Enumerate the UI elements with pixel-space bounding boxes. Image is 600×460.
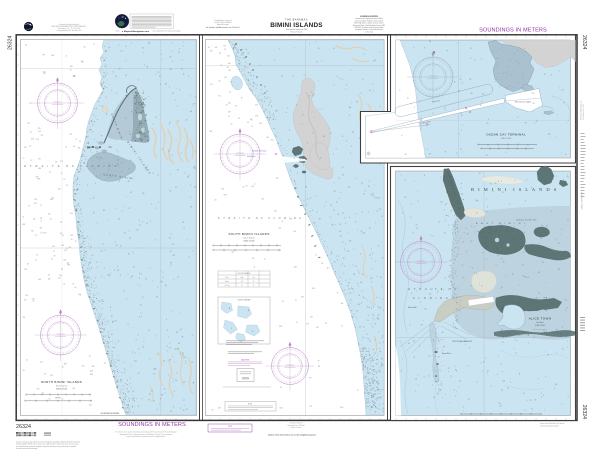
svg-text:33: 33 (153, 400, 155, 402)
svg-text:22: 22 (460, 79, 462, 81)
svg-text:11: 11 (538, 292, 540, 294)
svg-text:2: 2 (155, 208, 156, 210)
svg-text:19: 19 (339, 224, 341, 226)
svg-text:426: 426 (31, 138, 34, 140)
svg-text:2: 2 (190, 197, 191, 199)
svg-text:5: 5 (561, 229, 562, 231)
svg-text:8: 8 (424, 175, 425, 177)
svg-text:21: 21 (527, 277, 529, 279)
svg-text:37: 37 (318, 361, 320, 363)
svg-text:6: 6 (469, 348, 470, 350)
svg-text:1: 1 (555, 137, 556, 139)
svg-text:47: 47 (146, 223, 148, 225)
svg-text:42: 42 (461, 115, 463, 117)
svg-text:1: 1 (176, 88, 177, 90)
svg-text:17: 17 (444, 346, 446, 348)
svg-text:8: 8 (515, 339, 516, 341)
svg-text:1: 1 (125, 61, 126, 63)
svg-text:2: 2 (351, 102, 352, 104)
svg-text:5: 5 (482, 371, 483, 373)
svg-text:45: 45 (425, 308, 427, 310)
svg-text:77: 77 (372, 194, 374, 196)
svg-text:24: 24 (363, 297, 365, 299)
svg-text:38: 38 (429, 41, 431, 43)
svg-text:455: 455 (70, 213, 73, 215)
svg-text:37: 37 (544, 74, 546, 76)
svg-text:47: 47 (106, 114, 108, 116)
svg-text:SOUNDINGS IN METERS: SOUNDINGS IN METERS (533, 328, 547, 330)
svg-text:14: 14 (251, 126, 253, 128)
svg-text:3: 3 (418, 201, 419, 203)
svg-text:47: 47 (460, 113, 462, 115)
svg-text:6: 6 (173, 279, 174, 281)
svg-text:443: 443 (215, 47, 218, 49)
svg-text:360: 360 (228, 70, 231, 72)
svg-text:2: 2 (174, 362, 175, 364)
svg-text:15: 15 (125, 118, 127, 120)
svg-text:3: 3 (109, 276, 110, 278)
svg-text:17: 17 (316, 62, 318, 64)
svg-text:2: 2 (274, 60, 275, 62)
svg-text:B: B (248, 310, 249, 312)
svg-text:191: 191 (52, 198, 55, 200)
svg-text:2: 2 (383, 364, 384, 366)
svg-text:3: 3 (409, 324, 410, 326)
svg-text:3: 3 (481, 363, 482, 365)
svg-text:730: 730 (70, 235, 73, 237)
svg-text:83: 83 (135, 361, 137, 363)
svg-text:1: 1 (135, 353, 136, 355)
svg-text:26324: 26324 (16, 424, 31, 430)
svg-text:347: 347 (24, 147, 27, 149)
svg-text:62: 62 (367, 360, 369, 362)
svg-text:7: 7 (131, 388, 132, 390)
svg-text:1: 1 (79, 206, 80, 208)
svg-text:23: 23 (536, 121, 538, 123)
svg-text:3: 3 (153, 124, 154, 126)
svg-text:43: 43 (30, 131, 32, 133)
svg-text:31: 31 (164, 388, 166, 390)
svg-text:4: 4 (350, 152, 351, 154)
svg-text:11: 11 (342, 213, 344, 215)
svg-text:655: 655 (228, 103, 231, 105)
svg-text:93: 93 (533, 103, 535, 105)
svg-text:779: 779 (42, 55, 45, 57)
svg-text:1: 1 (462, 151, 463, 153)
svg-text:179: 179 (306, 324, 309, 326)
svg-text:11: 11 (342, 136, 344, 138)
svg-text:25: 25 (139, 273, 141, 275)
svg-text:2: 2 (474, 232, 475, 234)
svg-text:ALICE TOWN: ALICE TOWN (529, 317, 552, 321)
svg-text:671: 671 (310, 406, 313, 408)
svg-text:16: 16 (341, 326, 343, 328)
svg-text:39: 39 (371, 407, 373, 409)
svg-text:58: 58 (103, 210, 105, 212)
svg-text:13: 13 (253, 83, 255, 85)
svg-text:111: 111 (276, 177, 279, 179)
svg-text:3: 3 (161, 54, 162, 56)
svg-text:B I M I N I I S L A N D S: B I M I N I I S L A N D S (471, 187, 558, 192)
svg-text:34: 34 (501, 390, 503, 392)
svg-text:22: 22 (487, 123, 489, 125)
svg-text:SOUNDINGS IN METERS: SOUNDINGS IN METERS (118, 422, 186, 428)
svg-text:20: 20 (231, 123, 233, 125)
svg-text:2: 2 (130, 383, 131, 385)
svg-text:96: 96 (156, 296, 158, 298)
svg-text:6: 6 (146, 140, 147, 142)
svg-text:643: 643 (90, 370, 93, 372)
svg-text:3: 3 (190, 185, 191, 187)
svg-text:31: 31 (96, 157, 98, 159)
svg-text:1: 1 (176, 140, 177, 142)
svg-text:8: 8 (167, 330, 168, 332)
svg-text:7: 7 (473, 240, 474, 242)
svg-text:4: 4 (487, 206, 488, 208)
svg-text:43: 43 (75, 241, 77, 243)
svg-text:6: 6 (152, 173, 153, 175)
svg-text:8: 8 (378, 319, 379, 321)
svg-text:33: 33 (135, 104, 137, 106)
svg-text:5: 5 (144, 65, 145, 67)
svg-text:6: 6 (454, 390, 455, 392)
svg-text:4: 4 (117, 266, 118, 268)
svg-text:26: 26 (186, 409, 188, 411)
svg-text:311: 311 (43, 71, 46, 73)
svg-text:3: 3 (118, 45, 119, 47)
svg-text:2: 2 (495, 249, 496, 251)
svg-text:92: 92 (119, 69, 121, 71)
svg-text:73: 73 (531, 408, 533, 410)
svg-text:1: 1 (297, 173, 298, 175)
svg-text:22: 22 (141, 97, 143, 99)
svg-text:42: 42 (378, 315, 380, 317)
svg-text:49: 49 (131, 276, 133, 278)
svg-text:21: 21 (502, 192, 504, 194)
svg-text:42: 42 (512, 274, 514, 276)
svg-text:2: 2 (175, 100, 176, 102)
svg-text:3: 3 (376, 371, 377, 373)
svg-text:19: 19 (367, 320, 369, 322)
svg-text:51: 51 (562, 349, 564, 351)
svg-text:65: 65 (360, 282, 362, 284)
svg-text:579: 579 (64, 250, 67, 252)
svg-text:2: 2 (377, 318, 378, 320)
svg-text:7: 7 (139, 354, 140, 356)
svg-text:41: 41 (155, 117, 157, 119)
svg-text:58: 58 (40, 218, 42, 220)
svg-text:53: 53 (356, 311, 358, 313)
svg-text:3: 3 (413, 233, 414, 235)
svg-text:79: 79 (380, 277, 382, 279)
svg-text:543: 543 (341, 303, 344, 305)
svg-text:2: 2 (474, 273, 475, 275)
svg-text:6: 6 (521, 334, 522, 336)
svg-text:49: 49 (172, 244, 174, 246)
svg-text:774: 774 (104, 363, 107, 365)
svg-text:34: 34 (483, 361, 485, 363)
svg-text:44: 44 (281, 75, 283, 77)
svg-text:496: 496 (92, 366, 95, 368)
svg-text:18: 18 (490, 184, 492, 186)
svg-text:548: 548 (32, 298, 35, 300)
svg-text:11: 11 (428, 376, 430, 378)
svg-text:9: 9 (143, 91, 144, 93)
svg-text:57: 57 (138, 349, 140, 351)
svg-text:56: 56 (184, 357, 186, 359)
svg-text:23: 23 (476, 212, 478, 214)
svg-text:6: 6 (556, 352, 557, 354)
svg-text:134: 134 (227, 56, 230, 58)
svg-text:2: 2 (568, 397, 569, 399)
svg-text:55: 55 (229, 91, 231, 93)
svg-text:1: 1 (287, 108, 288, 110)
svg-text:97: 97 (375, 324, 377, 326)
svg-text:SOUNDINGS IN METERS: SOUNDINGS IN METERS (479, 27, 547, 33)
svg-text:36: 36 (553, 251, 555, 253)
svg-text:3: 3 (472, 268, 473, 270)
svg-text:12: 12 (158, 72, 160, 74)
svg-text:6: 6 (163, 277, 164, 279)
svg-text:603: 603 (280, 407, 283, 409)
svg-text:51: 51 (337, 293, 339, 295)
svg-text:55: 55 (369, 255, 371, 257)
svg-text:2: 2 (515, 180, 516, 182)
svg-text:7: 7 (459, 133, 460, 135)
svg-text:29: 29 (369, 90, 371, 92)
svg-text:2: 2 (90, 151, 91, 153)
svg-text:97: 97 (505, 337, 507, 339)
svg-text:86: 86 (436, 381, 438, 383)
svg-text:NORTH BIMINI ISLANDS: NORTH BIMINI ISLANDS (41, 380, 82, 384)
svg-text:47: 47 (159, 76, 161, 78)
svg-text:3: 3 (180, 330, 181, 332)
svg-text:19: 19 (146, 279, 148, 281)
svg-text:15: 15 (100, 158, 102, 160)
svg-text:7: 7 (379, 298, 380, 300)
svg-text:81: 81 (441, 202, 443, 204)
svg-text:58: 58 (80, 294, 82, 296)
svg-text:237: 237 (218, 407, 221, 409)
svg-text:34: 34 (459, 381, 461, 383)
svg-text:2: 2 (110, 274, 111, 276)
svg-text:67: 67 (429, 153, 431, 155)
svg-text:263: 263 (69, 247, 72, 249)
svg-text:507: 507 (255, 105, 258, 107)
svg-text:8: 8 (355, 221, 356, 223)
svg-text:4: 4 (102, 308, 103, 310)
svg-text:54: 54 (127, 405, 129, 407)
svg-text:38: 38 (79, 141, 81, 143)
svg-text:662: 662 (73, 388, 76, 390)
svg-text:88: 88 (470, 79, 472, 81)
svg-text:1: 1 (95, 278, 96, 280)
svg-text:6: 6 (138, 334, 139, 336)
svg-text:32: 32 (348, 187, 350, 189)
svg-text:6: 6 (188, 76, 189, 78)
svg-text:7: 7 (479, 284, 480, 286)
svg-text:32: 32 (295, 152, 297, 154)
svg-text:18: 18 (230, 82, 232, 84)
svg-text:13: 13 (355, 266, 357, 268)
svg-text:27: 27 (487, 370, 489, 372)
svg-text:1: 1 (450, 375, 451, 377)
svg-text:54: 54 (295, 300, 297, 302)
svg-text:62: 62 (376, 387, 378, 389)
svg-text:99: 99 (183, 410, 185, 412)
svg-text:8: 8 (189, 257, 190, 259)
svg-text:7: 7 (455, 369, 456, 371)
svg-text:6: 6 (339, 78, 340, 80)
svg-text:3: 3 (288, 140, 289, 142)
svg-text:1: 1 (333, 168, 334, 170)
svg-text:42: 42 (352, 289, 354, 291)
svg-text:174: 174 (208, 47, 211, 49)
svg-text:15: 15 (65, 147, 67, 149)
svg-text:58: 58 (247, 122, 249, 124)
svg-text:275: 275 (218, 96, 221, 98)
svg-text:15: 15 (522, 264, 524, 266)
svg-text:72: 72 (382, 258, 384, 260)
svg-text:41: 41 (282, 221, 284, 223)
svg-text:9: 9 (155, 239, 156, 241)
svg-text:122: 122 (218, 80, 221, 82)
svg-text:43: 43 (477, 231, 479, 233)
svg-text:16: 16 (182, 222, 184, 224)
svg-text:1: 1 (418, 385, 419, 387)
svg-text:79: 79 (102, 106, 104, 108)
svg-text:32: 32 (33, 300, 35, 302)
svg-text:6: 6 (183, 357, 184, 359)
svg-text:23: 23 (118, 218, 120, 220)
svg-text:1: 1 (181, 328, 182, 330)
svg-text:21: 21 (460, 149, 462, 151)
svg-text:63: 63 (555, 384, 557, 386)
svg-text:14: 14 (115, 76, 117, 78)
svg-text:SOUNDINGS IN METERS: SOUNDINGS IN METERS (101, 413, 120, 415)
svg-text:Place: Place (225, 277, 229, 279)
svg-text:2: 2 (314, 117, 315, 119)
svg-text:7: 7 (115, 344, 116, 346)
svg-text:24: 24 (26, 360, 28, 362)
svg-text:53: 53 (194, 168, 196, 170)
svg-text:144: 144 (69, 133, 72, 135)
svg-text:3: 3 (551, 211, 552, 213)
svg-text:2: 2 (373, 394, 374, 396)
svg-text:44: 44 (444, 107, 446, 109)
svg-text:497: 497 (34, 203, 37, 205)
svg-text:24: 24 (382, 408, 384, 410)
svg-text:81: 81 (336, 202, 338, 204)
svg-text:54: 54 (117, 270, 119, 272)
svg-text:6: 6 (309, 96, 310, 98)
svg-text:33: 33 (151, 391, 153, 393)
svg-text:3: 3 (556, 176, 557, 178)
svg-text:113: 113 (327, 268, 330, 270)
svg-text:40: 40 (241, 98, 243, 100)
svg-text:9: 9 (433, 340, 434, 342)
svg-text:43: 43 (89, 356, 91, 358)
svg-text:BIMINI ISLANDS: BIMINI ISLANDS (270, 22, 323, 29)
svg-text:16: 16 (71, 239, 73, 241)
svg-text:9: 9 (383, 411, 384, 413)
svg-text:13: 13 (530, 400, 532, 402)
svg-text:2: 2 (265, 87, 266, 89)
svg-text:56: 56 (73, 146, 75, 148)
svg-text:4: 4 (440, 177, 441, 179)
svg-text:41: 41 (42, 392, 44, 394)
svg-text:98: 98 (83, 162, 85, 164)
svg-text:3: 3 (446, 110, 447, 112)
svg-text:86: 86 (182, 337, 184, 339)
svg-text:22: 22 (149, 394, 151, 396)
svg-text:551: 551 (227, 67, 230, 69)
svg-text:3: 3 (195, 152, 196, 154)
svg-text:38: 38 (378, 198, 380, 200)
svg-text:4: 4 (162, 149, 163, 151)
svg-text:8: 8 (118, 341, 119, 343)
svg-text:1: 1 (369, 181, 370, 183)
svg-text:259: 259 (24, 300, 27, 302)
svg-text:47: 47 (368, 186, 370, 188)
svg-text:6: 6 (437, 351, 438, 353)
svg-text:23: 23 (35, 260, 37, 262)
svg-text:3: 3 (471, 226, 472, 228)
svg-text:29: 29 (124, 233, 126, 235)
svg-text:39: 39 (542, 262, 544, 264)
svg-text:2: 2 (455, 395, 456, 397)
svg-text:1: 1 (567, 341, 568, 343)
svg-text:69: 69 (187, 176, 189, 178)
svg-text:87: 87 (165, 83, 167, 85)
svg-text:8: 8 (424, 47, 425, 49)
svg-text:26: 26 (500, 405, 502, 407)
svg-text:45: 45 (373, 402, 375, 404)
svg-text:17: 17 (23, 158, 25, 160)
svg-text:78: 78 (193, 383, 195, 385)
svg-text:28: 28 (378, 398, 380, 400)
svg-text:8: 8 (243, 58, 244, 60)
svg-text:15: 15 (148, 400, 150, 402)
svg-text:35: 35 (275, 110, 277, 112)
svg-text:2: 2 (134, 92, 135, 94)
svg-text:32: 32 (181, 68, 183, 70)
svg-text:210: 210 (63, 260, 66, 262)
svg-text:8: 8 (160, 399, 161, 401)
svg-text:543: 543 (58, 189, 61, 191)
svg-text:6: 6 (372, 253, 373, 255)
svg-text:5: 5 (364, 54, 365, 56)
svg-text:3: 3 (509, 204, 510, 206)
svg-text:69: 69 (178, 343, 180, 345)
svg-text:9: 9 (183, 46, 184, 48)
svg-text:5: 5 (506, 276, 507, 278)
svg-text:13: 13 (145, 98, 147, 100)
svg-text:4: 4 (126, 46, 127, 48)
svg-text:17: 17 (470, 285, 472, 287)
svg-text:605: 605 (52, 246, 55, 248)
svg-text:3: 3 (115, 241, 116, 243)
svg-text:19: 19 (542, 225, 544, 227)
svg-text:5: 5 (517, 117, 518, 119)
svg-text:74: 74 (140, 305, 142, 307)
svg-text:5: 5 (105, 250, 106, 252)
svg-text:1: 1 (160, 114, 161, 116)
svg-text:3: 3 (195, 97, 196, 99)
svg-text:5: 5 (141, 313, 142, 315)
svg-text:9: 9 (143, 53, 144, 55)
svg-text:38: 38 (89, 263, 91, 265)
